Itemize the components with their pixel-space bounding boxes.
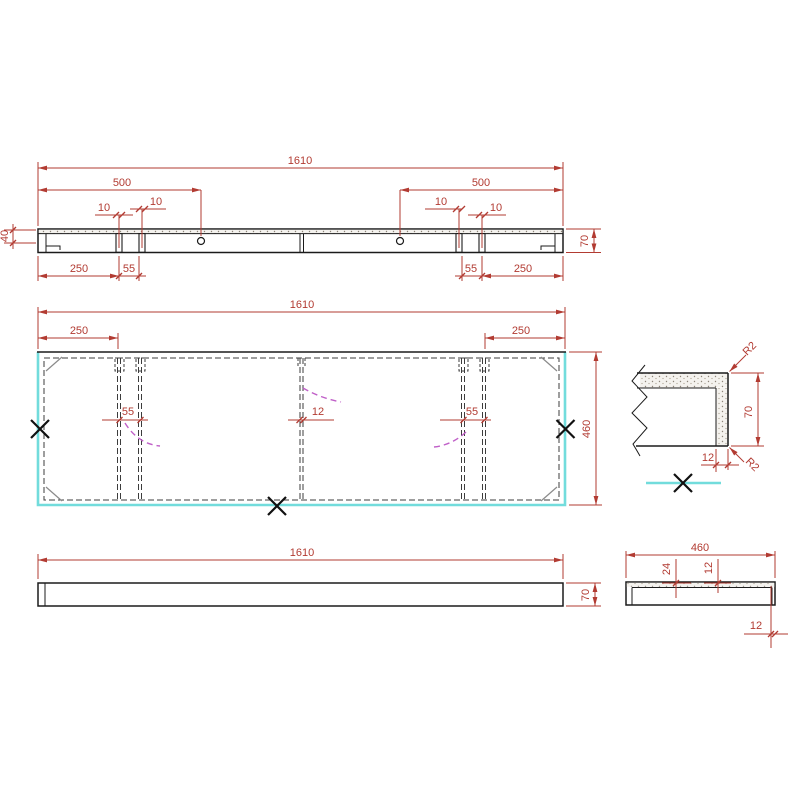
dim-section-250-right: 250: [482, 256, 563, 281]
dim-label-detail-70: 70: [743, 406, 755, 418]
dim-label-plan-1610: 1610: [290, 299, 314, 311]
dim-label-plan-250-left: 250: [70, 325, 88, 337]
dim-label-detail-12: 12: [702, 452, 714, 464]
plan-hidden-slot-marks: [115, 358, 489, 371]
hole-right: [397, 238, 404, 245]
dim-label-detail-r2-bottom: R2: [743, 456, 761, 474]
dim-section-55-right: 55: [455, 256, 485, 281]
dim-label-section-500-right: 500: [472, 177, 490, 189]
dim-section-250-left: 250: [38, 256, 119, 281]
dim-label-section-500-left: 500: [113, 177, 131, 189]
side-view: 460 24 12 12: [626, 542, 788, 648]
detail-top-skin: [640, 374, 728, 388]
dim-label-section-70: 70: [579, 235, 591, 247]
dim-label-section-10-3: 10: [435, 196, 447, 208]
dim-label-plan-55-right: 55: [466, 406, 478, 418]
dim-label-section-40: 40: [0, 230, 11, 242]
dim-label-side-12: 12: [703, 562, 715, 574]
dim-label-side-24: 24: [661, 563, 673, 575]
front-view: 1610 70: [38, 547, 601, 606]
corner-detail-view: R2 70 R2 12: [632, 340, 764, 492]
dim-label-plan-12: 12: [312, 406, 324, 418]
dim-label-section-55-left: 55: [123, 263, 135, 275]
dim-front-1610: 1610: [38, 547, 563, 579]
dim-front-70: 70: [566, 583, 601, 606]
cad-drawing: 1610 500 500 10 10: [0, 0, 800, 800]
front-outline: [38, 583, 563, 606]
dim-plan-460: 460: [569, 352, 602, 505]
plan-highlight-border: [38, 352, 565, 505]
hole-left: [198, 238, 205, 245]
dim-side-460: 460: [626, 542, 775, 578]
dim-plan-12: 12: [288, 406, 334, 423]
plan-hidden-inner-rect: [44, 358, 559, 500]
plan-corner-chamfers: [46, 357, 557, 501]
cad-drawing-canvas: 1610 500 500 10 10: [0, 0, 800, 800]
dim-plan-250-left: 250: [38, 325, 118, 349]
dim-label-plan-250-right: 250: [512, 325, 530, 337]
dim-plan-1610: 1610: [38, 299, 565, 349]
section-top-skin-texture: [39, 230, 563, 234]
dim-section-55-left: 55: [116, 256, 146, 281]
dim-label-section-10-2: 10: [150, 196, 162, 208]
dim-label-plan-55-left: 55: [122, 406, 134, 418]
dim-label-section-10-1: 10: [98, 202, 110, 214]
section-view: 1610 500 500 10 10: [0, 155, 601, 281]
dim-label-section-1610: 1610: [288, 155, 312, 167]
dim-label-front-1610: 1610: [290, 547, 314, 559]
side-top-skin-texture: [627, 583, 775, 587]
dim-label-detail-r2-top: R2: [741, 340, 759, 358]
dim-section-70: 70: [566, 229, 601, 253]
dim-label-section-250-right: 250: [514, 263, 532, 275]
dim-detail-r2-bottom: R2: [730, 448, 762, 475]
dim-plan-55-right: 55: [440, 406, 491, 423]
dim-label-section-55-right: 55: [465, 263, 477, 275]
dim-detail-70: 70: [731, 373, 764, 446]
dim-label-section-250-left: 250: [70, 263, 88, 275]
dim-section-40: 40: [0, 224, 36, 249]
plan-rotation-arcs: [125, 388, 466, 447]
detail-edge-band: [716, 388, 728, 446]
dim-detail-r2-top: R2: [730, 340, 760, 372]
dim-detail-12: 12: [701, 449, 739, 472]
dim-label-side-12-band: 12: [750, 620, 762, 632]
dim-label-section-10-4: 10: [490, 202, 502, 214]
dim-label-plan-460: 460: [581, 420, 593, 438]
dim-plan-250-right: 250: [485, 325, 565, 349]
plan-hidden-dividers: [118, 358, 486, 500]
dim-label-front-70: 70: [580, 589, 592, 601]
plan-view: 55 12 55 1610 250 250: [31, 299, 602, 515]
dim-label-side-460: 460: [691, 542, 709, 554]
plan-x-mark-left: [31, 420, 49, 438]
